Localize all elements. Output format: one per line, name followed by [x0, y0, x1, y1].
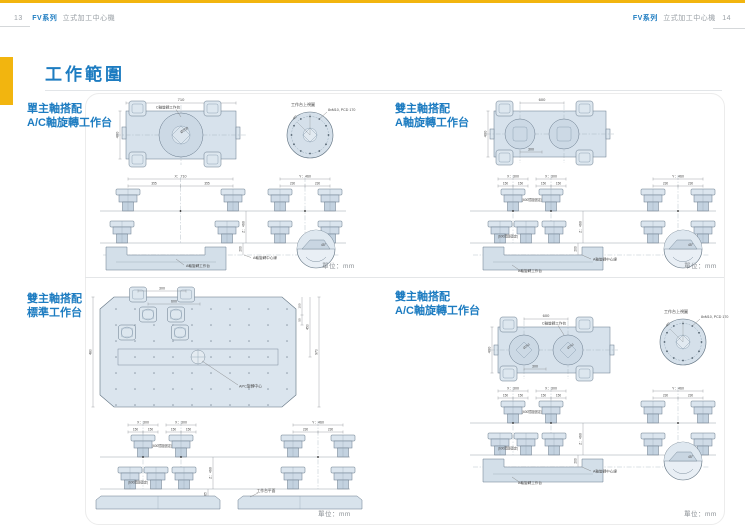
drawing-dual-spindle-a-table: 600 400 300 [458, 95, 740, 275]
trunnion-block [576, 317, 593, 332]
dim-65: 65 [204, 492, 208, 496]
dim-970: 970 [315, 349, 319, 355]
header-right: FV系列 立式加工中心機 14 [630, 13, 735, 23]
dim-355: 355 [151, 182, 157, 186]
table-top-view-label: 工作台上視圖 [291, 101, 315, 107]
dual-spindle-travel-diagram [470, 386, 716, 485]
unit-label: 單位：mm [322, 260, 355, 270]
series-name: FV系列 [633, 15, 658, 22]
x-travel-dims [128, 420, 196, 433]
a-axis-table-label: A軸旋轉工作台 [186, 263, 210, 268]
panel-divider [85, 277, 724, 278]
trunnion-block [204, 101, 221, 116]
dim-400: 400 [487, 346, 492, 353]
spindle-head [215, 221, 239, 243]
mount-block [119, 325, 136, 340]
dim-710: 710 [178, 97, 185, 102]
trunnion-block [576, 366, 593, 381]
trunnion-block [496, 150, 513, 165]
trunnion-block [129, 101, 146, 116]
catalog-page: { "page": { "header": { "left_page_no": … [0, 0, 745, 530]
a-axis-centerline-label: A軸旋轉中心線 [253, 255, 277, 260]
dim-x710: X：710 [175, 174, 187, 178]
page-number-right: 14 [722, 15, 731, 22]
machine-type: 立式加工中心機 [663, 15, 716, 22]
unit-label: 單位：mm [318, 508, 351, 518]
dim-600: 600 [171, 299, 177, 303]
c-axis-table-label: C軸旋轉工作台 [542, 321, 567, 326]
drawing-dual-spindle-standard-table: 300 600 APC旋轉中心 480 100 50 450 970 [88, 285, 368, 525]
header-rule-right [713, 28, 745, 29]
header-rule-left [0, 26, 30, 27]
spindle-head [268, 189, 292, 211]
dim-300: 300 [528, 147, 534, 151]
dim-100: 100 [298, 303, 302, 308]
c-axis-table-label: C軸旋轉工作台 [156, 105, 181, 110]
header-left: 13 FV系列 立式加工中心機 [10, 13, 115, 23]
table-top-view-circle: 工作台上視圖 45° 8xM10, PCD 170 [660, 308, 728, 365]
spindle-head [331, 467, 355, 489]
mount-block [168, 307, 185, 322]
a-table-circle [505, 119, 535, 149]
spacing-note: (600間距固定) [128, 480, 148, 485]
spindle-head [172, 467, 196, 489]
dim-480: 480 [89, 349, 93, 355]
unit-label: 單位：mm [684, 260, 717, 270]
spindle-head [281, 435, 305, 457]
spindle-head [144, 467, 168, 489]
title-accent-block [0, 57, 13, 105]
dim-z460: Z：460 [242, 221, 246, 233]
spindle-head [331, 435, 355, 457]
trunnion-block [576, 101, 593, 116]
section-title-line: 雙主軸搭配 [27, 292, 82, 306]
dim-z460: Z：460 [209, 467, 213, 479]
trunnion-block [129, 152, 146, 167]
dim-600: 600 [539, 97, 546, 102]
dim-200: 200 [239, 246, 243, 252]
spindle-head [110, 221, 134, 243]
top-view-dual-ac-table: 600 400 Ø250 Ø250 300 C軸旋轉工作台 [487, 313, 619, 381]
drawing-dual-spindle-ac-table: 600 400 Ø250 Ø250 300 C軸旋轉工作台 工作台上視圖 [458, 285, 740, 500]
a-table-circle [549, 119, 579, 149]
single-spindle-travel-diagram: X：710 355 355 Z：460 200 A軸旋轉工作台 A軸旋轉中心線 [100, 174, 346, 270]
trunnion-block [496, 101, 513, 116]
mount-block [178, 287, 195, 302]
title-rule [45, 90, 722, 91]
table-section [96, 496, 220, 509]
page-number-left: 13 [14, 15, 23, 22]
table-top-view-circle: 工作台上視圖 45° 8xM10, PCD 170 [287, 101, 355, 158]
table-surface-label: 工作台平面 [257, 488, 276, 493]
spacing-note: (600間距固定) [152, 443, 172, 448]
dim-400: 400 [483, 130, 488, 137]
dim-355: 355 [204, 182, 210, 186]
drawing-single-spindle-ac-table: 45° X：300 150 150 X：300 150 150 Y：460 23… [88, 95, 368, 275]
dim-600: 600 [543, 313, 550, 318]
top-view-ac-table: 710 400 Ø250 C軸旋轉工作台 [115, 97, 247, 167]
dim-300: 300 [532, 364, 538, 368]
page-title: 工作範圍 [45, 60, 125, 85]
top-accent-strip [0, 0, 745, 3]
top-view-a-table: 600 400 300 [483, 97, 615, 165]
trunnion-block [500, 366, 517, 381]
spindle-head [268, 221, 292, 243]
table-top-view-label: 工作台上視圖 [664, 308, 688, 314]
spindle-head [118, 467, 142, 489]
spindle-head [116, 189, 140, 211]
machine-type: 立式加工中心機 [63, 15, 116, 22]
spindle-head [281, 467, 305, 489]
spindle-head [318, 189, 342, 211]
section-title-3: 雙主軸搭配 標準工作台 [27, 292, 82, 320]
bolt-pattern-label: 8xM10, PCD 170 [328, 108, 355, 112]
section-title-line: 標準工作台 [27, 306, 82, 320]
dual-spindle-travel-flat: (600間距固定) (600間距固定) Z：460 65 工作台平面 [96, 420, 362, 509]
dim-450: 450 [306, 324, 310, 330]
mount-block [140, 307, 157, 322]
top-view-standard-table: 300 600 APC旋轉中心 480 100 50 450 970 [89, 286, 321, 407]
dim-300: 300 [159, 286, 165, 290]
series-name: FV系列 [32, 15, 57, 22]
mount-block [172, 325, 189, 340]
y-travel-dims [293, 420, 343, 433]
spindle-head [221, 189, 245, 211]
trunnion-block [500, 317, 517, 332]
dim-400: 400 [115, 131, 120, 138]
dim-50: 50 [298, 318, 302, 322]
spindle-head [169, 435, 193, 457]
apc-center-label: APC旋轉中心 [239, 384, 262, 389]
unit-label: 單位：mm [684, 508, 717, 518]
trunnion-block [204, 152, 221, 167]
dual-spindle-travel-diagram [470, 174, 716, 273]
bolt-pattern-label: 8xM10, PCD 170 [701, 315, 728, 319]
trunnion-block [576, 150, 593, 165]
mount-block [130, 287, 147, 302]
